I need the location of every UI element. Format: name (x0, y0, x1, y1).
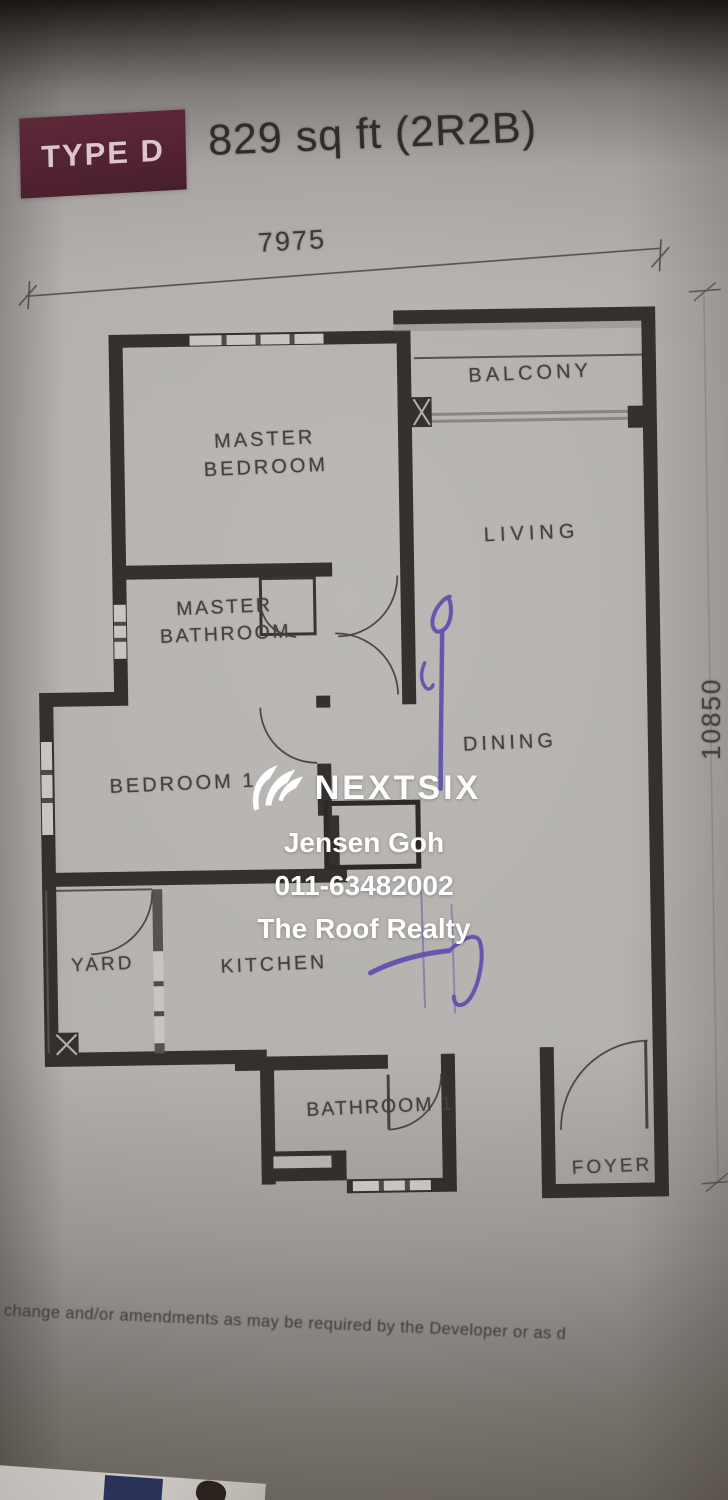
bedroom-hall-door-arc (335, 632, 398, 695)
floor-plan-photo: TYPE D 829 sq ft (2R2B) 7975 10850 (0, 0, 728, 1500)
dimension-height-label: 10850 (696, 660, 726, 760)
watermark-brand-text: NEXTSIX (315, 769, 481, 808)
type-badge: TYPE D (19, 109, 186, 198)
floor-plan: BALCONY MASTER BEDROOM LIVING MASTER BAT… (0, 0, 728, 1500)
floor-plan-svg (0, 0, 728, 1500)
nextsix-logo-icon (247, 760, 303, 816)
room-label-yard: YARD (55, 950, 151, 981)
bedroom1-door-arc (260, 707, 317, 764)
agent-watermark: NEXTSIX Jensen Goh 011-63482002 The Roof… (0, 760, 728, 945)
room-label-master-bedroom: MASTER BEDROOM (184, 422, 346, 485)
bathroom1-step (273, 1156, 331, 1169)
watermark-agent-name: Jensen Goh (0, 827, 728, 859)
foyer-door-arc (560, 1041, 649, 1130)
watermark-agency: The Roof Realty (0, 913, 728, 945)
balcony-slider (432, 410, 628, 423)
watermark-agent-phone: 011-63482002 (0, 870, 728, 902)
foyer-door-leaf (646, 1041, 647, 1129)
type-badge-label: TYPE D (41, 133, 166, 176)
walls (33, 306, 669, 1206)
bathroom-hall-door-arc (337, 575, 398, 636)
room-label-foyer: FOYER (559, 1152, 665, 1183)
room-label-master-bathroom: MASTER BATHROOM (135, 590, 315, 652)
navy-object-artifact (103, 1475, 163, 1500)
watermark-brand-row: NEXTSIX (0, 760, 728, 816)
